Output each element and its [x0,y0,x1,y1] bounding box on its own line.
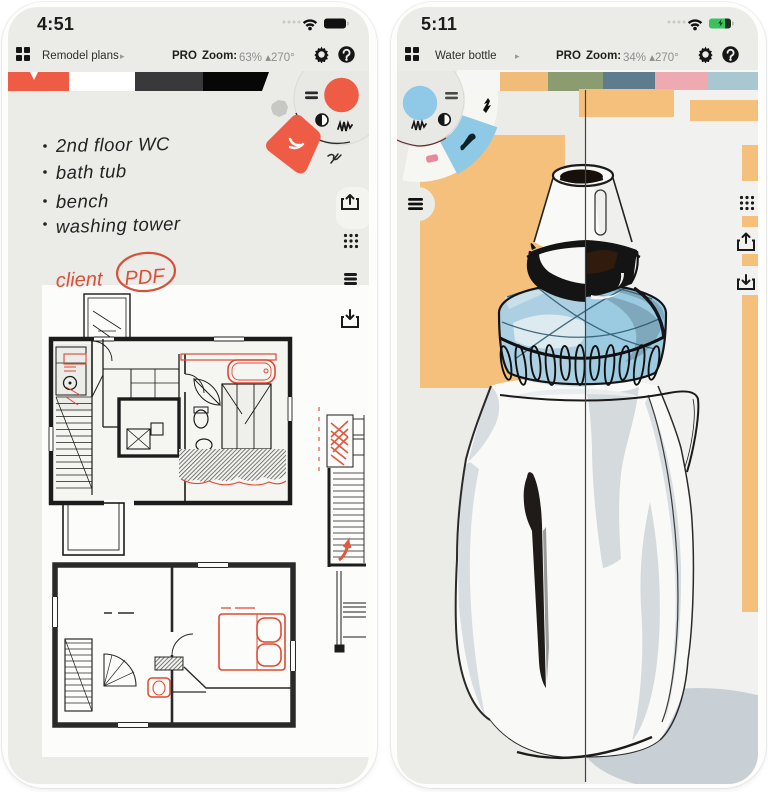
svg-text:washing tower: washing tower [56,213,182,237]
svg-text:PDF: PDF [124,265,167,290]
svg-text:bath tub: bath tub [56,160,127,183]
svg-text:2nd floor WC: 2nd floor WC [55,133,170,156]
svg-text:client: client [55,268,104,292]
svg-text:bench: bench [56,190,109,212]
